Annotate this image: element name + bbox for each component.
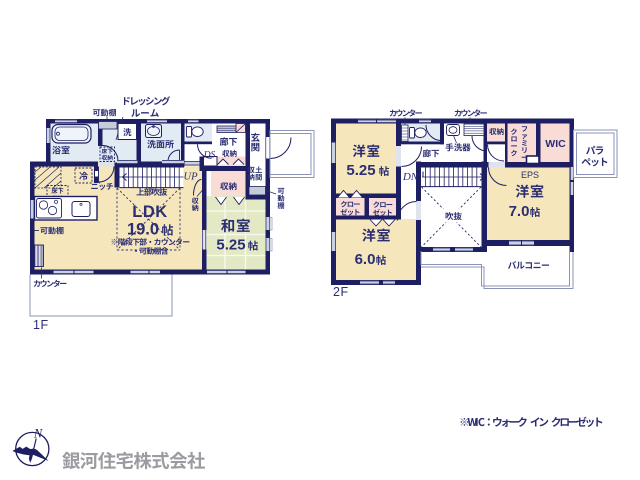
svg-text:1F: 1F <box>33 318 49 332</box>
svg-text:19.0: 19.0 <box>127 221 159 239</box>
svg-text:5.25: 5.25 <box>346 162 375 179</box>
svg-text:6.0: 6.0 <box>355 251 376 268</box>
svg-text:EPS: EPS <box>521 170 539 180</box>
svg-text:7.0: 7.0 <box>509 203 530 220</box>
svg-text:DS: DS <box>203 151 216 161</box>
svg-text:UP: UP <box>184 172 199 183</box>
svg-text:WIC: WIC <box>545 138 566 150</box>
svg-text:5.25: 5.25 <box>216 237 245 254</box>
svg-text:N: N <box>33 427 43 441</box>
svg-text:LDK: LDK <box>132 203 167 221</box>
svg-text:2F: 2F <box>333 285 349 299</box>
svg-text:DN: DN <box>402 171 419 183</box>
